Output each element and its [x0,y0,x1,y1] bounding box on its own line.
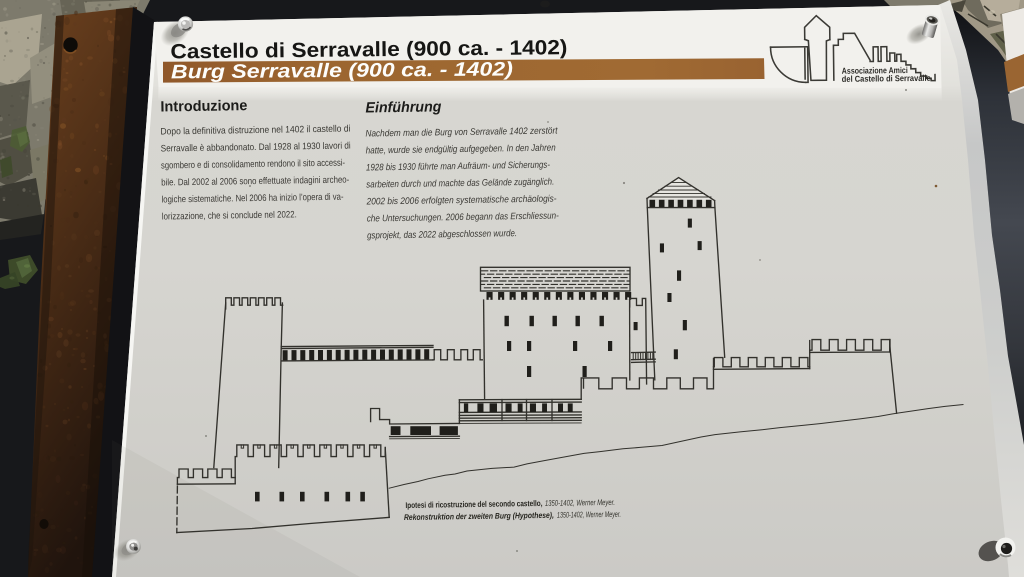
svg-text:Burg Serravalle (900 ca. - 140: Burg Serravalle (900 ca. - 1402) [171,58,513,83]
svg-text:1350-1402, Werner Meyer.: 1350-1402, Werner Meyer. [545,498,615,508]
svg-text:Introduzione: Introduzione [160,98,247,115]
svg-text:del Castello di Serravalle: del Castello di Serravalle [842,73,931,84]
svg-text:lorizzazione, che si conclude: lorizzazione, che si conclude nel 2022. [162,208,297,221]
svg-text:1350-1402, Werner Meyer.: 1350-1402, Werner Meyer. [557,510,621,520]
svg-text:Einführung: Einführung [365,99,441,116]
svg-text:gsprojekt, das 2022 abgeschlos: gsprojekt, das 2022 abgeschlossen wurde. [367,227,517,240]
